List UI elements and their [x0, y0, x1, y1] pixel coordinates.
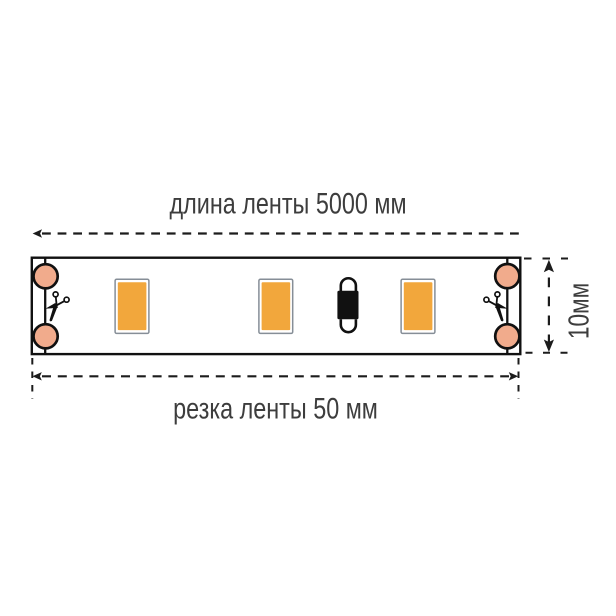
svg-text:резка ленты 50 мм: резка ленты 50 мм: [173, 392, 378, 425]
svg-text:10мм: 10мм: [562, 283, 595, 339]
svg-text:длина ленты 5000 мм: длина ленты 5000 мм: [169, 187, 406, 220]
